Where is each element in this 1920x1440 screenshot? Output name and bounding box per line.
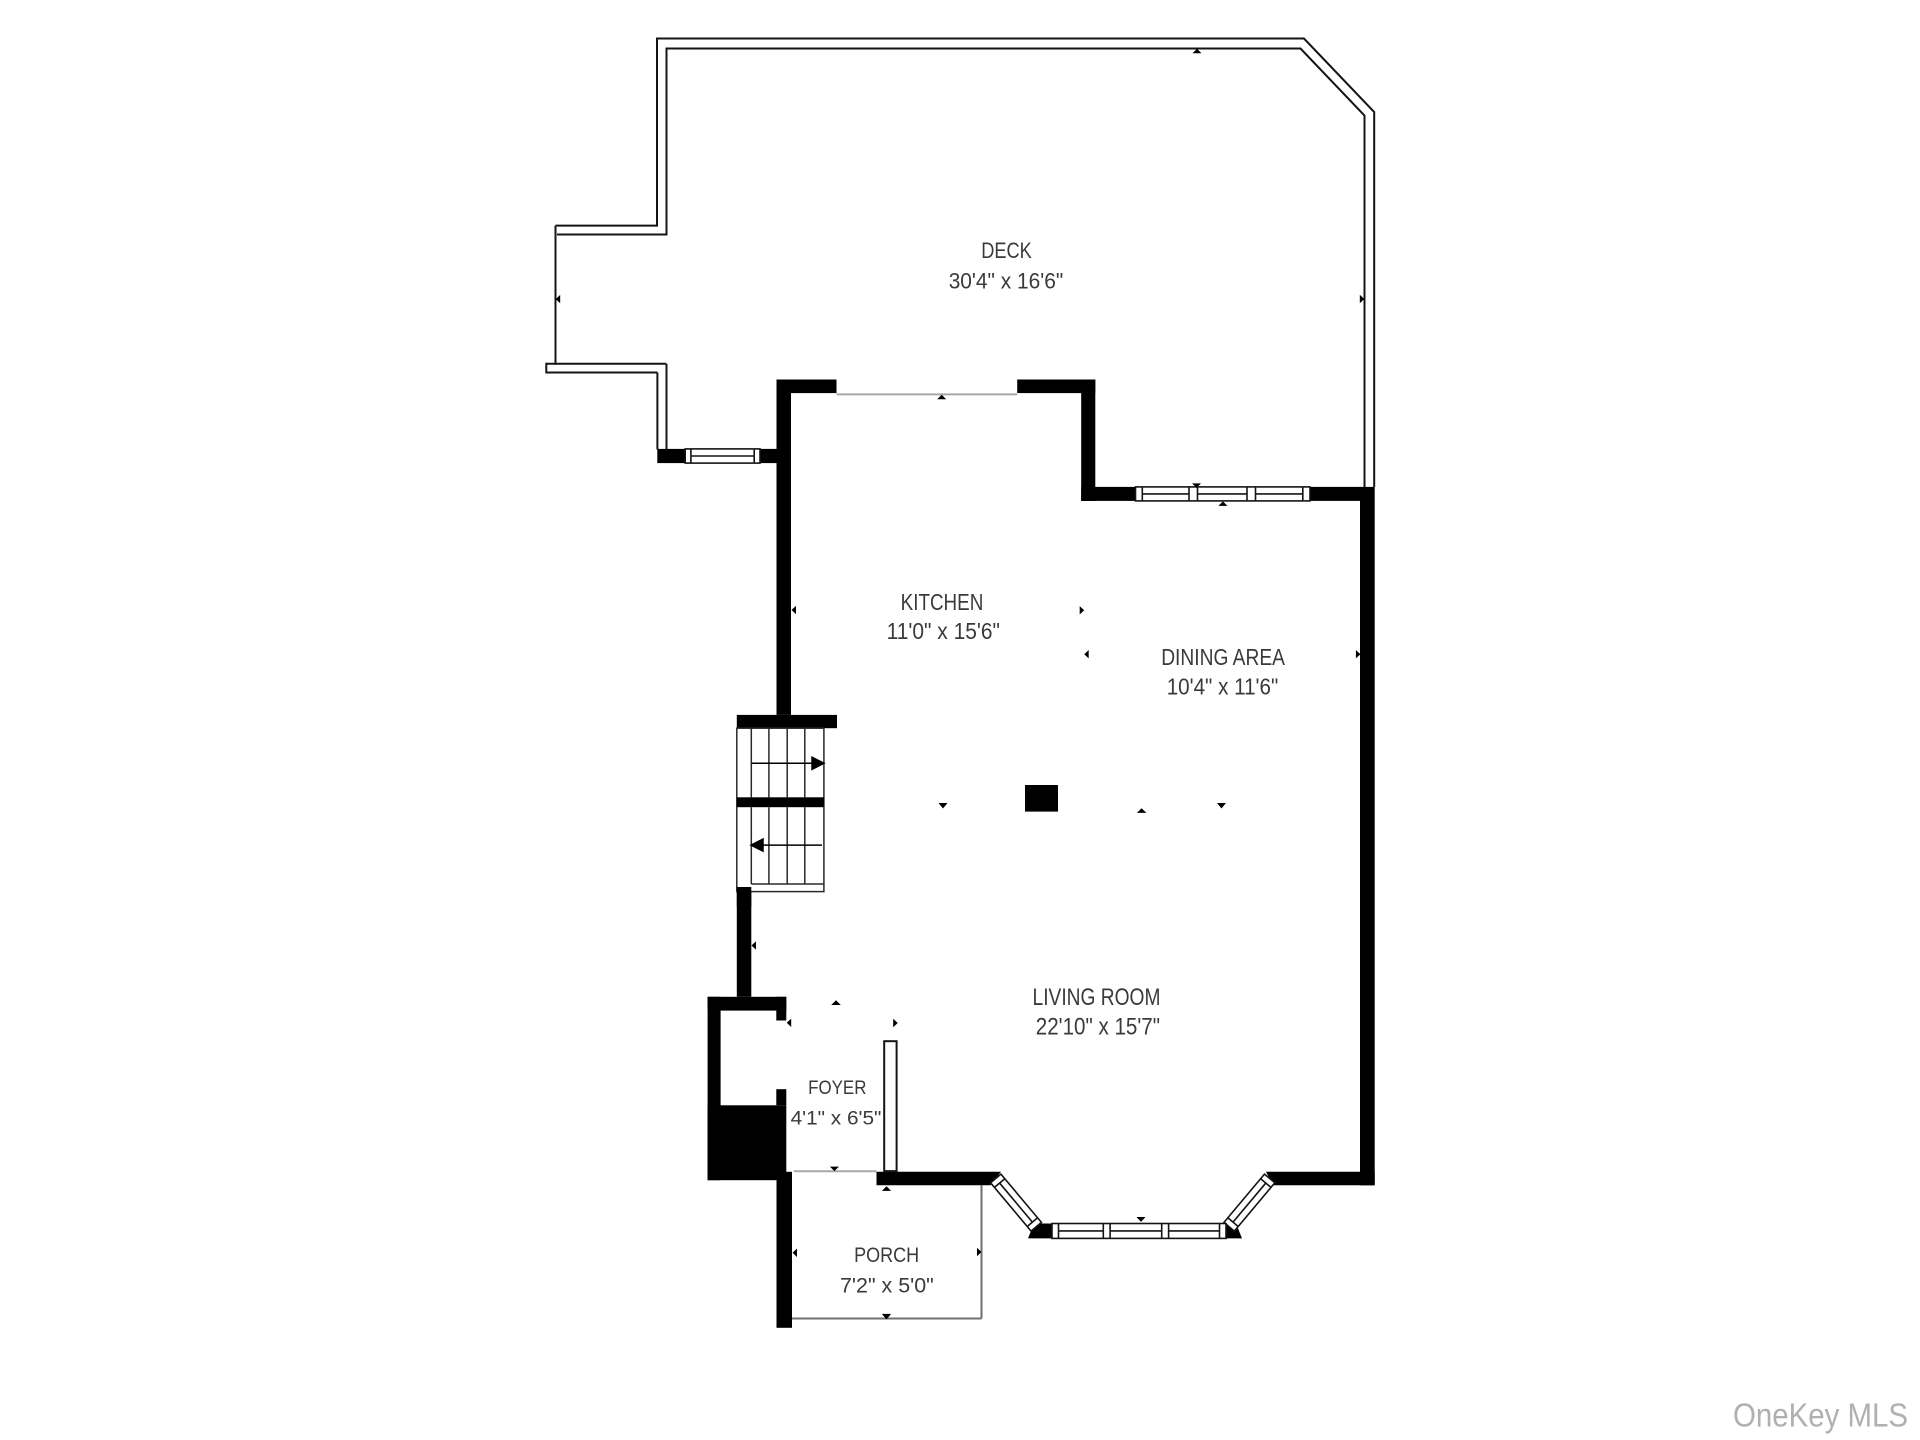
svg-text:22'10" x 15'7": 22'10" x 15'7": [1036, 1013, 1160, 1040]
svg-text:DINING AREA: DINING AREA: [1161, 644, 1285, 670]
svg-text:OneKey MLS: OneKey MLS: [1733, 1398, 1908, 1435]
svg-text:DECK: DECK: [981, 238, 1032, 263]
svg-text:30'4" x 16'6": 30'4" x 16'6": [949, 268, 1064, 293]
svg-text:FOYER: FOYER: [808, 1077, 866, 1099]
svg-text:KITCHEN: KITCHEN: [901, 589, 984, 615]
svg-text:4'1" x 6'5": 4'1" x 6'5": [791, 1108, 882, 1130]
svg-text:LIVING ROOM: LIVING ROOM: [1033, 984, 1161, 1011]
svg-text:11'0" x 15'6": 11'0" x 15'6": [887, 618, 1000, 644]
svg-text:7'2" x 5'0": 7'2" x 5'0": [840, 1274, 934, 1298]
svg-text:PORCH: PORCH: [854, 1243, 919, 1267]
svg-text:10'4" x 11'6": 10'4" x 11'6": [1167, 673, 1279, 699]
